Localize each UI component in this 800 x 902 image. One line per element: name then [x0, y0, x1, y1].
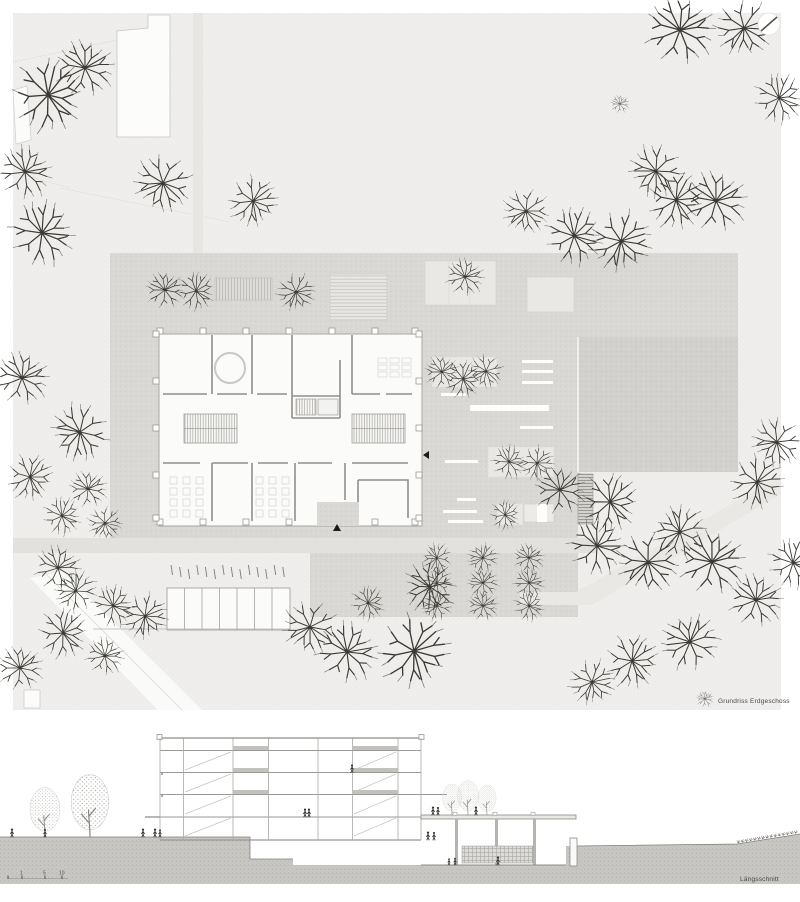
plaza-south — [310, 553, 578, 617]
north-arrow-icon — [758, 13, 780, 35]
column — [372, 519, 378, 525]
scrub-mark — [745, 839, 748, 842]
tree-icon — [478, 785, 496, 815]
planting-court-a — [425, 261, 496, 305]
person-figure-icon — [475, 807, 478, 816]
person-figure-icon — [351, 764, 354, 772]
street — [13, 538, 598, 553]
person-figure-icon — [432, 807, 435, 816]
person-figure-icon — [448, 858, 450, 865]
structure-piers — [160, 738, 421, 840]
column — [153, 378, 159, 384]
column — [329, 328, 335, 334]
core-cell — [296, 399, 316, 415]
bench — [522, 370, 553, 373]
scale-label-1: 1 — [20, 871, 23, 877]
column — [153, 515, 159, 521]
building-section — [145, 735, 447, 841]
scrub-mark — [753, 837, 756, 840]
tree-icon — [71, 775, 109, 837]
scale-label-10: 10 — [59, 871, 65, 877]
column — [416, 515, 422, 521]
person-figure-icon — [427, 832, 430, 841]
column — [153, 425, 159, 431]
column — [416, 472, 422, 478]
site-plan: Grundriss Erdgeschoss — [0, 0, 800, 713]
column — [286, 519, 292, 525]
column — [200, 328, 206, 334]
scrub-mark — [762, 836, 765, 839]
long-section: 1 5 10 Längsschnitt — [0, 735, 800, 885]
scrub-mark — [741, 839, 744, 842]
planting-court-b — [527, 277, 574, 312]
bench — [445, 460, 478, 463]
scrub-mark — [737, 840, 740, 843]
person-figure-icon — [304, 809, 307, 818]
neighbour-building-south — [24, 690, 40, 708]
column — [416, 378, 422, 384]
column — [372, 328, 378, 334]
entrance-recess — [317, 502, 359, 526]
column — [286, 328, 292, 334]
column — [243, 519, 249, 525]
person-figure-icon — [11, 829, 14, 838]
scale-label-5: 5 — [43, 871, 46, 877]
person-figure-icon — [308, 809, 311, 818]
person-figure-icon — [154, 829, 157, 838]
site-plan-title: Grundriss Erdgeschoss — [718, 698, 790, 705]
scrub-mark — [770, 834, 773, 837]
scrub-mark — [758, 837, 761, 840]
column — [200, 519, 206, 525]
column — [416, 425, 422, 431]
column — [416, 331, 422, 337]
scrub-mark — [749, 838, 752, 841]
drawing-sheet: Grundriss Erdgeschoss — [0, 0, 800, 902]
scrub-mark — [794, 830, 797, 833]
person-figure-icon — [433, 832, 436, 840]
terrace-slab — [421, 815, 576, 819]
scrub-mark — [786, 832, 789, 835]
parapet-bars — [233, 746, 398, 794]
scrub-mark — [778, 833, 781, 836]
core-cell — [318, 399, 338, 415]
scrub-mark — [766, 835, 769, 838]
scrub-mark — [782, 832, 785, 835]
stair-east — [352, 414, 405, 443]
north-footpath — [193, 13, 203, 253]
floor-slabs — [160, 751, 421, 841]
bench — [470, 405, 549, 411]
drawing-canvas: Grundriss Erdgeschoss — [0, 0, 800, 902]
scrub-mark — [790, 831, 793, 834]
outdoor-stair — [578, 474, 593, 524]
section-title: Längsschnitt — [740, 876, 779, 883]
bench — [443, 510, 477, 513]
column — [153, 472, 159, 478]
person-figure-icon — [437, 807, 440, 815]
section-ground — [0, 834, 800, 884]
bench — [520, 426, 553, 429]
stair-west — [184, 414, 237, 443]
main-building-plan — [153, 328, 429, 531]
neighbour-building-north — [117, 15, 170, 137]
plaza-north-band — [110, 253, 738, 337]
bench — [522, 381, 553, 384]
bench — [448, 520, 483, 523]
retaining-wall — [570, 838, 577, 866]
bench — [522, 360, 553, 363]
column — [153, 331, 159, 337]
section-trees — [30, 775, 496, 837]
pergola-mid — [330, 274, 387, 320]
pergola-west — [215, 278, 272, 300]
bench — [457, 498, 476, 501]
scrub-mark — [774, 834, 777, 837]
bench-block-seat — [537, 504, 547, 522]
column — [243, 328, 249, 334]
plaza-east-terrace — [578, 337, 738, 472]
person-figure-icon — [142, 829, 145, 838]
